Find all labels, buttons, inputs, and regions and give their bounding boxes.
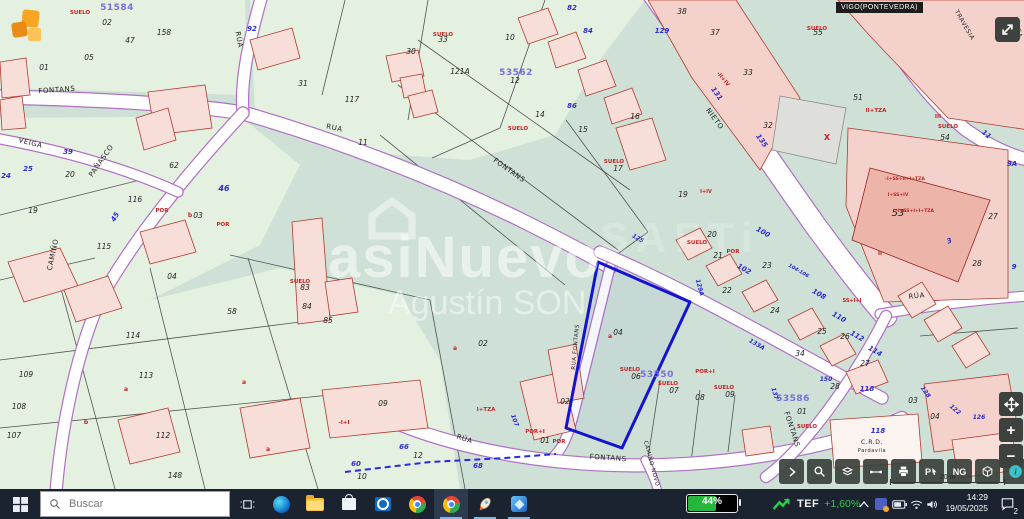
svg-text:C.R.D.: C.R.D. (861, 439, 883, 446)
svg-text:11: 11 (358, 138, 368, 147)
toolbar-print-button[interactable] (891, 459, 916, 484)
svg-text:28: 28 (830, 382, 840, 391)
toolbar-pdf-button[interactable]: P (919, 459, 944, 484)
outlook-icon (375, 497, 391, 511)
map-zoom-controls: + − (999, 392, 1023, 468)
svg-text:32: 32 (763, 121, 773, 130)
svg-text:SUELO: SUELO (714, 385, 734, 391)
svg-text:113: 113 (139, 371, 154, 380)
cursor-arrow-icon (931, 467, 938, 476)
svg-text:158: 158 (157, 28, 172, 37)
svg-text:37: 37 (710, 28, 720, 37)
svg-text:09: 09 (725, 390, 735, 399)
svg-text:33: 33 (743, 68, 753, 77)
svg-text:150: 150 (820, 376, 833, 383)
svg-text:SUELO: SUELO (807, 26, 827, 32)
svg-text:9A: 9A (1007, 160, 1017, 168)
taskbar-clock[interactable]: 14:29 19/05/2025 (936, 492, 988, 515)
svg-text:05: 05 (84, 53, 94, 62)
svg-text:84: 84 (583, 27, 593, 35)
svg-text:SUELO: SUELO (604, 159, 624, 165)
svg-text:SUELO: SUELO (658, 381, 678, 387)
svg-text:108: 108 (12, 402, 27, 411)
svg-text:115: 115 (97, 242, 112, 251)
cadastral-map[interactable]: 51584535625355053586FONTANSVEIGARÚAPAÑAS… (0, 0, 1024, 489)
svg-text:16: 16 (630, 112, 640, 121)
toolbar-3d-button[interactable] (975, 459, 1000, 484)
cadastral-map-viewer: 51584535625355053586FONTANSVEIGARÚAPAÑAS… (0, 0, 1024, 489)
store-bag-icon (342, 498, 356, 510)
photos-icon (511, 496, 527, 512)
chrome-icon (409, 496, 426, 513)
search-icon (49, 498, 61, 510)
svg-text:47: 47 (125, 36, 135, 45)
svg-text:a: a (453, 345, 457, 352)
svg-text:92: 92 (247, 25, 257, 33)
svg-text:02: 02 (560, 397, 570, 406)
info-icon: i (1007, 463, 1024, 480)
svg-text:17: 17 (613, 164, 623, 173)
svg-text:54: 54 (940, 133, 950, 142)
svg-text:-I+I: -I+I (339, 420, 350, 426)
notification-center-button[interactable]: 2 (993, 489, 1021, 519)
svg-text:126: 126 (973, 414, 986, 421)
svg-text:12: 12 (510, 76, 520, 85)
expand-arrows-icon (1000, 22, 1015, 37)
toolbar-measure-button[interactable] (863, 459, 888, 484)
svg-text:19: 19 (678, 190, 688, 199)
printer-icon (897, 465, 910, 478)
fullscreen-button[interactable] (995, 17, 1020, 42)
search-icon (813, 465, 826, 478)
ng-label: NG (953, 467, 967, 477)
task-view-button[interactable] (230, 489, 264, 519)
clock-date: 19/05/2025 (936, 503, 988, 514)
svg-text:53550: 53550 (640, 370, 674, 380)
svg-text:114: 114 (126, 331, 141, 340)
svg-text:20: 20 (707, 230, 717, 239)
svg-text:53586: 53586 (776, 394, 810, 404)
svg-text:26: 26 (840, 332, 850, 341)
svg-text:a: a (124, 386, 128, 393)
svg-text:II+TZA: II+TZA (866, 108, 887, 114)
svg-text:34: 34 (795, 349, 805, 358)
chevron-up-icon (859, 501, 869, 508)
svg-text:a: a (242, 379, 246, 386)
svg-text:04: 04 (613, 328, 623, 337)
svg-text:107: 107 (7, 431, 22, 440)
svg-text:27: 27 (988, 212, 998, 221)
location-label: VIGO(PONTEVEDRA) (836, 2, 923, 13)
svg-text:19: 19 (28, 206, 38, 215)
svg-text:SUELO: SUELO (70, 10, 90, 16)
svg-text:118: 118 (871, 427, 886, 435)
layers-icon (841, 465, 854, 478)
svg-text:POR: POR (217, 222, 231, 228)
battery-percent: 44% (687, 496, 737, 507)
svg-text:04: 04 (167, 272, 177, 281)
notification-badge: 2 (1014, 507, 1018, 516)
svg-text:9: 9 (1012, 263, 1017, 271)
svg-text:31: 31 (298, 79, 308, 88)
svg-text:66: 66 (399, 443, 409, 451)
svg-text:24: 24 (770, 306, 780, 315)
svg-text:21: 21 (713, 251, 723, 260)
svg-text:04: 04 (930, 412, 940, 421)
svg-text:112: 112 (156, 431, 171, 440)
battery-nub (739, 499, 742, 506)
svg-text:24: 24 (1, 172, 11, 180)
desktop-screen: 51584535625355053586FONTANSVEIGARÚAPAÑAS… (0, 0, 1024, 519)
svg-text:POR+I: POR+I (525, 429, 545, 435)
svg-text:84: 84 (302, 302, 312, 311)
tray-battery-button[interactable] (890, 489, 908, 519)
svg-text:POR: POR (727, 249, 741, 255)
svg-text:116: 116 (128, 195, 143, 204)
svg-text:15: 15 (578, 125, 588, 134)
tray-wifi-button[interactable] (907, 489, 925, 519)
svg-text:25: 25 (817, 327, 827, 336)
svg-text:58: 58 (227, 307, 237, 316)
svg-text:82: 82 (567, 4, 577, 12)
svg-text:03: 03 (908, 396, 918, 405)
svg-text:10: 10 (505, 33, 515, 42)
svg-text:01: 01 (39, 63, 49, 72)
svg-text:01: 01 (540, 436, 550, 445)
svg-text:SUELO: SUELO (620, 367, 640, 373)
svg-text:SUELO: SUELO (797, 424, 817, 430)
map-toolbar: P NG i (779, 459, 1024, 484)
edge-icon (273, 496, 290, 513)
svg-text:68: 68 (473, 462, 483, 470)
svg-text:b: b (84, 419, 89, 426)
svg-text:X: X (824, 133, 831, 142)
chevron-right-icon (786, 466, 798, 478)
task-view-icon (240, 498, 255, 511)
notification-icon (1000, 497, 1015, 511)
battery-icon (892, 500, 907, 509)
svg-text:02: 02 (478, 339, 488, 348)
edge-button[interactable] (264, 489, 298, 519)
svg-text:-I+SS+I+I+TZA: -I+SS+I+I+TZA (896, 208, 935, 214)
svg-text:b: b (188, 212, 193, 219)
svg-text:14: 14 (535, 110, 545, 119)
svg-text:SUELO: SUELO (290, 279, 310, 285)
svg-text:03: 03 (193, 211, 203, 220)
svg-text:07: 07 (669, 386, 679, 395)
svg-text:109: 109 (19, 370, 34, 379)
wifi-icon (910, 499, 923, 510)
zoom-in-button[interactable]: + (999, 418, 1023, 442)
windows-taskbar: 44% TEF +1,60% (0, 489, 1024, 519)
tray-app-icon (875, 498, 887, 510)
svg-text:01: 01 (797, 407, 807, 416)
pan-button[interactable] (999, 392, 1023, 416)
clock-time: 14:29 (936, 492, 988, 503)
svg-text:SUELO: SUELO (508, 126, 528, 132)
svg-text:08: 08 (695, 393, 705, 402)
pan-icon (1004, 397, 1019, 412)
svg-text:I+IV: I+IV (700, 189, 712, 195)
svg-text:POR: POR (553, 439, 567, 445)
rocket-icon (476, 495, 494, 513)
stock-up-arrow-icon (772, 497, 792, 511)
svg-text:09: 09 (378, 399, 388, 408)
tray-app-button[interactable] (872, 489, 890, 519)
stock-ticker[interactable]: TEF +1,60% (772, 489, 860, 519)
chrome-icon (443, 496, 460, 513)
measure-icon (869, 465, 883, 479)
svg-text:SUELO: SUELO (687, 240, 707, 246)
photos-button[interactable] (502, 489, 536, 519)
battery-widget[interactable]: 44% (686, 494, 738, 513)
svg-text:121A: 121A (450, 67, 469, 76)
svg-text:27: 27 (860, 359, 870, 368)
svg-text:I+TZA: I+TZA (477, 407, 496, 413)
start-button[interactable] (0, 489, 40, 519)
svg-text:85: 85 (323, 316, 333, 325)
svg-text:46: 46 (217, 184, 230, 193)
tray-chevron-button[interactable] (856, 489, 872, 519)
svg-text:148: 148 (168, 471, 183, 480)
svg-text:30: 30 (406, 47, 416, 56)
toolbar-search-button[interactable] (807, 459, 832, 484)
svg-text:39: 39 (63, 148, 73, 156)
cube-3d-icon (981, 465, 994, 478)
toolbar-layers-button[interactable] (835, 459, 860, 484)
windows-logo-icon (13, 497, 28, 512)
svg-text:SUELO: SUELO (938, 124, 958, 130)
svg-text:20: 20 (65, 170, 75, 179)
svg-text:10: 10 (357, 472, 367, 481)
game-rocket-button[interactable] (468, 489, 502, 519)
svg-text:62: 62 (169, 161, 179, 170)
outlook-button[interactable] (366, 489, 400, 519)
toolbar-ng-button[interactable]: NG (947, 459, 972, 484)
svg-text:12: 12 (413, 451, 423, 460)
svg-text:22: 22 (722, 286, 732, 295)
svg-text:51: 51 (853, 93, 863, 102)
svg-text:60: 60 (351, 460, 361, 468)
svg-text:II: II (878, 251, 882, 257)
chrome-button[interactable] (400, 489, 434, 519)
svg-text:117: 117 (345, 95, 360, 104)
stock-symbol: TEF (797, 498, 819, 510)
file-explorer-icon (306, 498, 324, 511)
svg-text:02: 02 (102, 18, 112, 27)
store-button[interactable] (332, 489, 366, 519)
svg-text:SUELO: SUELO (433, 32, 453, 38)
file-explorer-button[interactable] (298, 489, 332, 519)
stock-change: +1,60% (824, 498, 860, 510)
svg-text:-I+SS+II+I+TZA: -I+SS+II+I+TZA (885, 176, 925, 182)
svg-text:28: 28 (972, 259, 982, 268)
svg-text:POR: POR (156, 208, 170, 214)
svg-text:Pardavila: Pardavila (858, 448, 886, 454)
svg-text:23: 23 (762, 261, 772, 270)
taskbar-search[interactable] (40, 491, 230, 517)
svg-text:06: 06 (631, 372, 641, 381)
svg-text:38: 38 (677, 7, 687, 16)
toolbar-info-button[interactable]: i (1003, 459, 1024, 484)
svg-text:III: III (935, 114, 941, 120)
chrome-active-button[interactable] (434, 489, 468, 519)
svg-text:RÚA: RÚA (908, 290, 925, 301)
svg-text:POR+I: POR+I (695, 369, 715, 375)
svg-text:51584: 51584 (100, 3, 134, 13)
svg-text:118: 118 (860, 385, 875, 393)
svg-text:86: 86 (567, 102, 577, 110)
svg-text:SS+I+I: SS+I+I (842, 298, 861, 304)
search-input[interactable] (67, 497, 201, 511)
svg-text:25: 25 (23, 165, 33, 173)
svg-text:a: a (266, 446, 270, 453)
svg-text:129: 129 (655, 27, 670, 35)
toolbar-expand-button[interactable] (779, 459, 804, 484)
svg-text:a: a (608, 333, 612, 340)
svg-text:I+SS+IV: I+SS+IV (888, 192, 909, 198)
